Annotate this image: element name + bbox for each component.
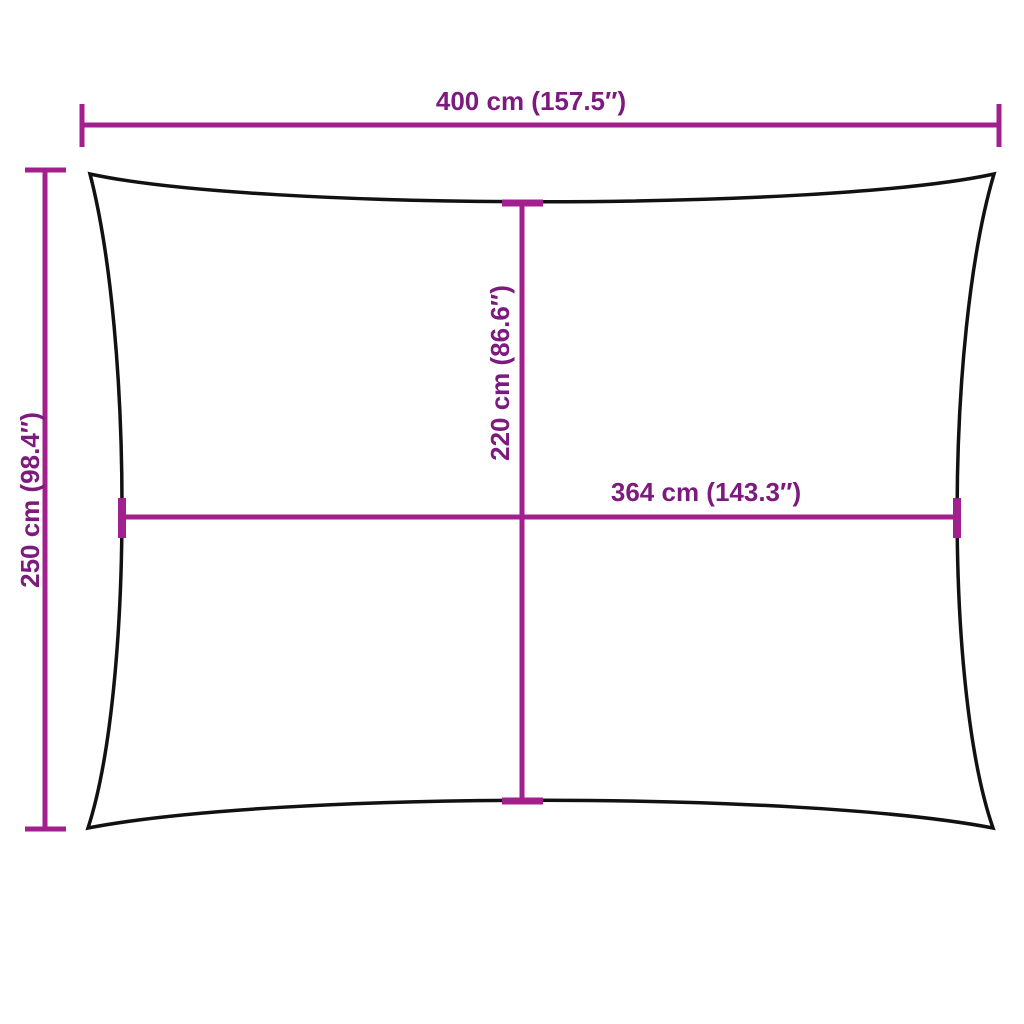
diagram-drawing [0,0,1024,1024]
center-height-label: 220 cm (86.6″) [485,285,515,461]
center-width-dimension [122,498,957,538]
center-width-label: 364 cm (143.3″) [611,477,801,507]
top-width-label: 400 cm (157.5″) [436,86,626,116]
left-height-label: 250 cm (98.4″) [15,412,45,588]
sail-outline [88,174,994,828]
dimension-diagram: 400 cm (157.5″) 250 cm (98.4″) 220 cm (8… [0,0,1024,1024]
